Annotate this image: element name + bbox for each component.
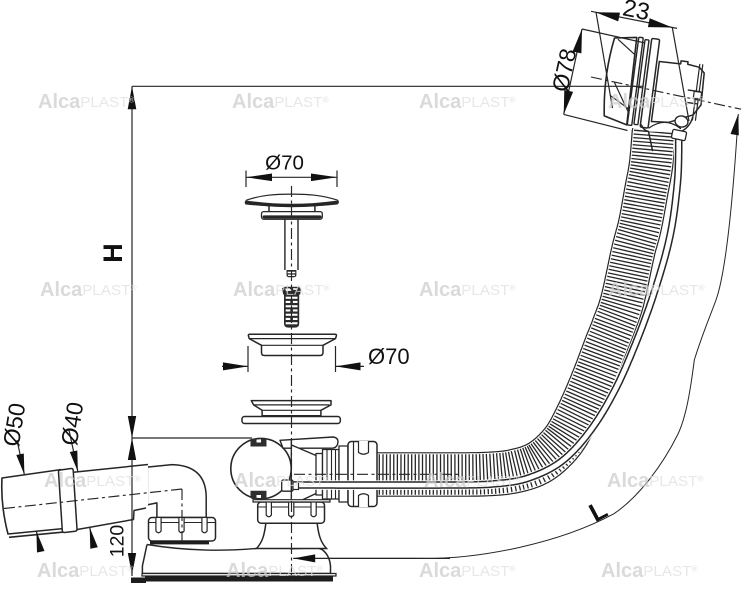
svg-text:AlcaPLAST®: AlcaPLAST® bbox=[424, 470, 521, 492]
svg-text:Ø70: Ø70 bbox=[368, 344, 410, 369]
svg-text:AlcaPLAST®: AlcaPLAST® bbox=[233, 279, 330, 301]
svg-text:AlcaPLAST®: AlcaPLAST® bbox=[44, 470, 141, 492]
svg-text:Ø70: Ø70 bbox=[265, 152, 304, 175]
svg-text:AlcaPLAST®: AlcaPLAST® bbox=[40, 279, 137, 301]
svg-text:AlcaPLAST®: AlcaPLAST® bbox=[608, 279, 705, 301]
svg-text:H: H bbox=[98, 243, 128, 263]
svg-text:AlcaPLAST®: AlcaPLAST® bbox=[601, 560, 698, 582]
svg-text:AlcaPLAST®: AlcaPLAST® bbox=[607, 470, 704, 492]
svg-text:120: 120 bbox=[107, 525, 129, 558]
svg-text:AlcaPLAST®: AlcaPLAST® bbox=[38, 91, 135, 113]
svg-text:AlcaPLAST®: AlcaPLAST® bbox=[419, 560, 516, 582]
svg-text:AlcaPLAST®: AlcaPLAST® bbox=[234, 470, 331, 492]
svg-text:AlcaPLAST®: AlcaPLAST® bbox=[37, 560, 134, 582]
svg-text:AlcaPLAST®: AlcaPLAST® bbox=[232, 91, 329, 113]
svg-text:AlcaPLAST®: AlcaPLAST® bbox=[226, 560, 323, 582]
svg-text:AlcaPLAST®: AlcaPLAST® bbox=[608, 91, 705, 113]
svg-text:AlcaPLAST®: AlcaPLAST® bbox=[419, 91, 516, 113]
svg-text:AlcaPLAST®: AlcaPLAST® bbox=[419, 279, 516, 301]
